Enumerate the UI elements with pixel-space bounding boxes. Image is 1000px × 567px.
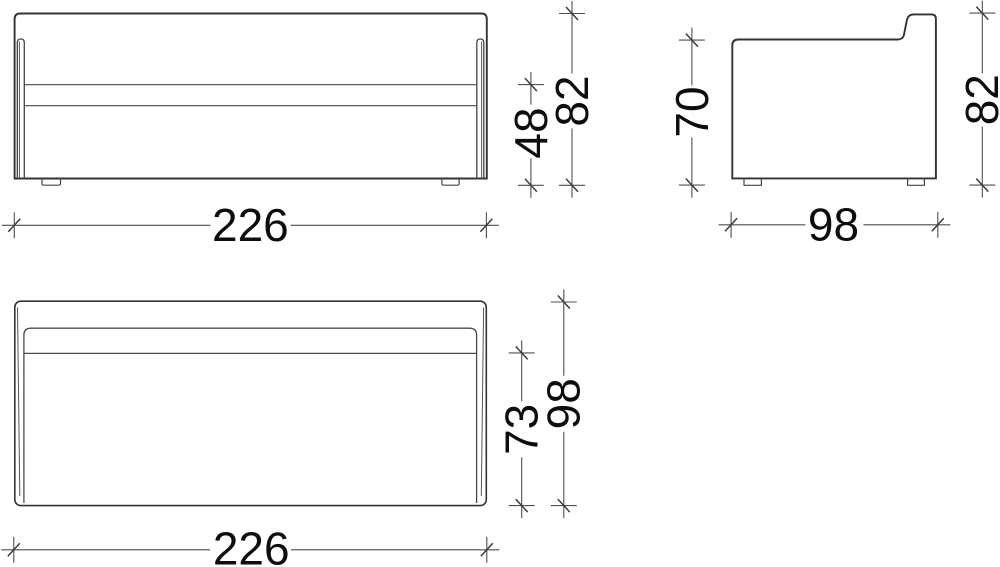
svg-text:98: 98 bbox=[808, 199, 859, 251]
svg-text:70: 70 bbox=[666, 86, 718, 137]
svg-text:98: 98 bbox=[538, 378, 590, 429]
svg-text:226: 226 bbox=[212, 199, 289, 251]
svg-text:82: 82 bbox=[956, 74, 1000, 125]
svg-text:226: 226 bbox=[213, 523, 290, 567]
svg-text:82: 82 bbox=[546, 75, 598, 126]
